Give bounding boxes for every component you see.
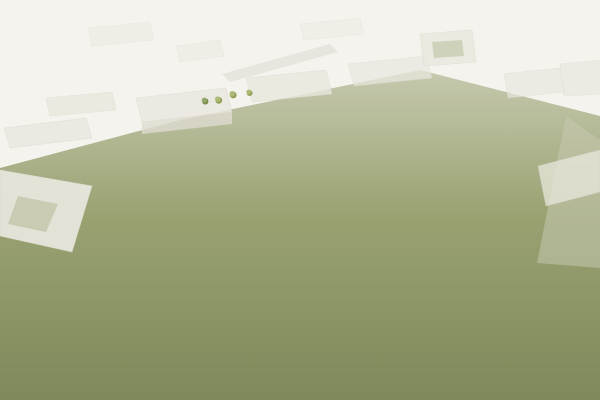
tree xyxy=(229,91,234,96)
tree xyxy=(246,90,251,95)
campus-aerial-rendering xyxy=(0,0,600,400)
architectural-rendering-canvas xyxy=(0,0,600,400)
tree xyxy=(202,98,207,103)
tree xyxy=(215,96,220,101)
context-building xyxy=(560,60,600,96)
context-u-courtyard xyxy=(432,40,464,58)
